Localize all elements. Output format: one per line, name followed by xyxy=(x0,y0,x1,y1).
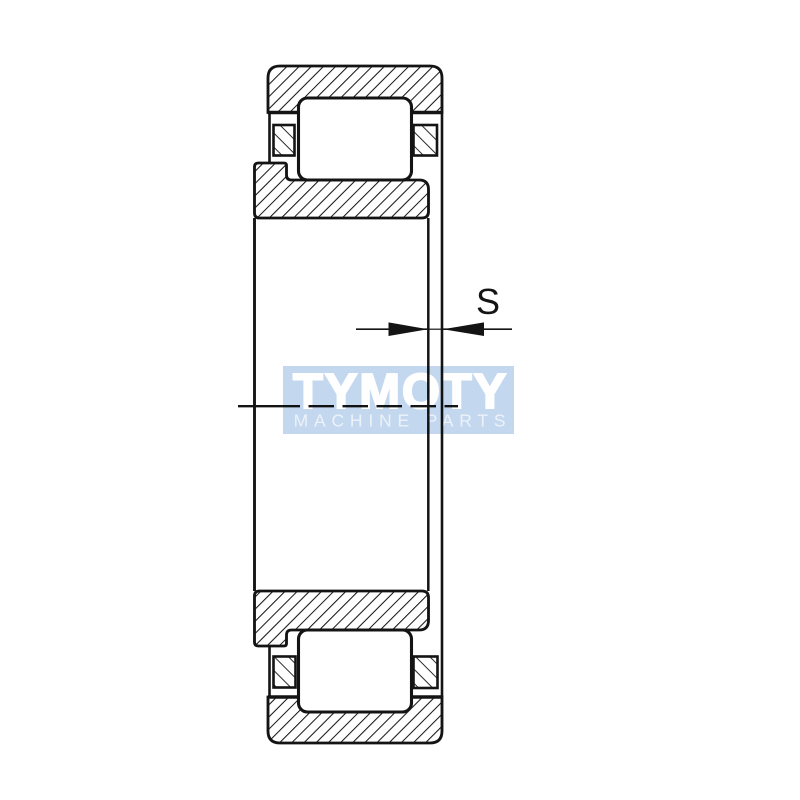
svg-text:S: S xyxy=(476,281,500,322)
svg-text:MACHINE PARTS: MACHINE PARTS xyxy=(294,411,512,431)
